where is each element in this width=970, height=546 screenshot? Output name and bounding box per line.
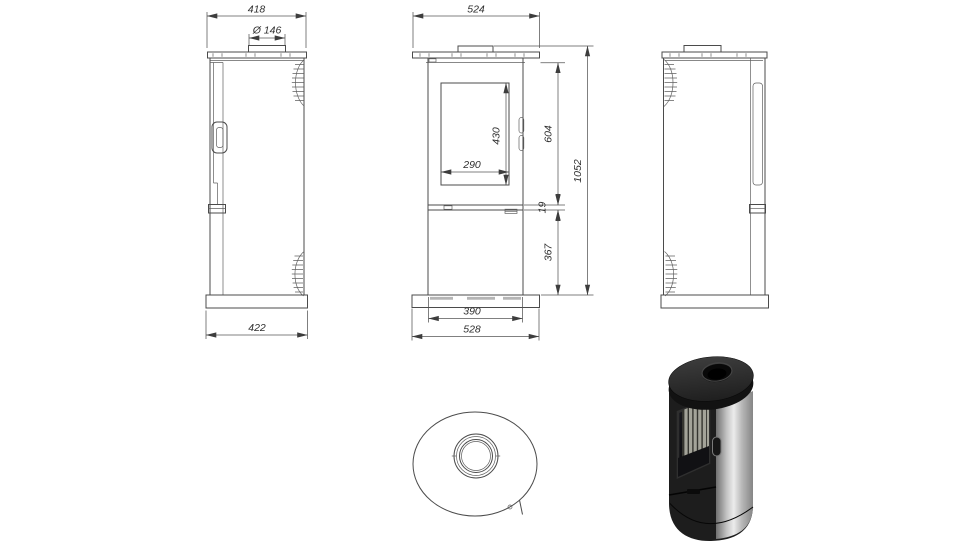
dim-total-height: 1052	[572, 46, 588, 295]
dim-label-1052: 1052	[572, 159, 584, 183]
dim-label-367: 367	[543, 243, 555, 262]
dim-glass-height: 430	[491, 83, 507, 185]
flue-collar-front	[458, 46, 493, 52]
top-view-body-outline	[413, 412, 537, 516]
door-handle-side	[212, 122, 227, 153]
dim-label-430: 430	[491, 127, 503, 145]
dim-label-290: 290	[462, 159, 481, 171]
dim-glass-width: 290	[441, 159, 509, 172]
top-plate-front	[413, 52, 540, 58]
render-seam-notch	[687, 489, 700, 494]
vent-slats-upper-right	[664, 60, 677, 107]
dim-label-418: 418	[248, 4, 266, 16]
dim-shelf-thickness: 19	[537, 194, 559, 222]
dim-upper-section: 604	[543, 63, 559, 205]
dim-lower-section: 367	[543, 210, 559, 295]
vent-slats-upper	[292, 60, 305, 107]
door-profile	[209, 63, 228, 296]
dim-label-604: 604	[543, 125, 555, 143]
top-plate-right	[662, 52, 767, 58]
top-view	[413, 412, 537, 516]
base-plinth-right	[661, 295, 769, 308]
dim-label-524: 524	[467, 4, 485, 16]
vent-slats-lower-right	[665, 252, 678, 297]
front-view: 524 290 430 604	[412, 4, 594, 341]
right-side-view	[661, 46, 769, 309]
dim-label-19: 19	[537, 202, 549, 214]
hinge-recess	[753, 83, 763, 185]
base-plinth-side	[206, 295, 308, 308]
dim-flue-diameter: Ø 146	[249, 25, 285, 46]
dim-front-top-width: 524	[413, 4, 540, 49]
log-shelf-band	[428, 205, 523, 213]
dim-side-base-depth: 422	[206, 311, 308, 340]
dim-label-390: 390	[463, 306, 481, 318]
dim-label-422: 422	[248, 322, 266, 334]
dim-base-inner-width: 390	[429, 297, 523, 323]
flue-collar-right	[684, 46, 721, 53]
left-side-view: 418 Ø 146 422	[206, 4, 308, 340]
stove-3d-render	[666, 353, 755, 541]
render-steel-panel	[716, 391, 753, 539]
body-outline-right	[664, 58, 766, 295]
dim-label-528: 528	[463, 324, 481, 336]
vent-slats-lower	[292, 252, 304, 297]
technical-drawing-sheet: 418 Ø 146 422	[0, 0, 970, 546]
body-outline-side	[210, 58, 304, 295]
top-plate-ticks-front	[420, 53, 524, 57]
top-plate-ticks	[213, 53, 290, 57]
flue-collar-side	[249, 46, 286, 53]
flue-opening-top	[452, 434, 500, 478]
dim-label-146: Ø 146	[252, 25, 282, 37]
render-door-handle	[713, 437, 722, 456]
